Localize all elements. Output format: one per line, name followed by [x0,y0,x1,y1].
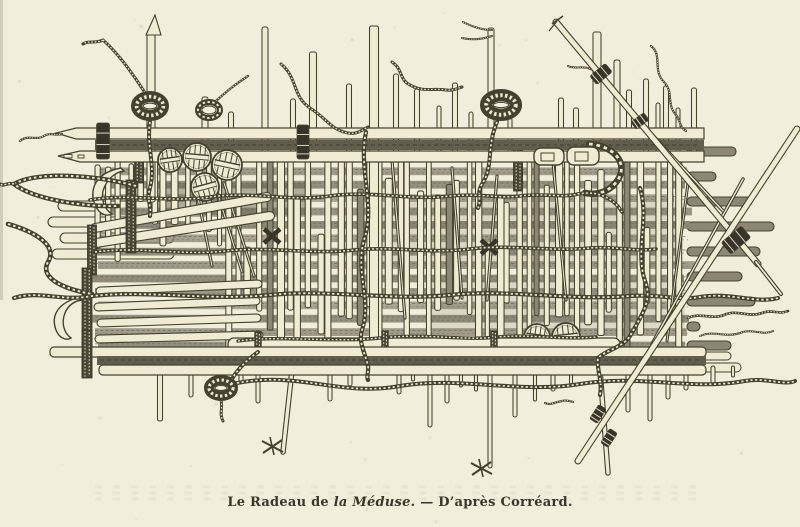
caption: Le Radeau de la Méduse. — D’après Corréa… [0,495,800,510]
caption-prefix: Le Radeau de [227,495,333,510]
engraving-figure: Le Radeau de la Méduse. — D’après Corréa… [0,0,800,527]
top-edge-beams [56,123,704,162]
raft-of-the-medusa-engraving [0,0,800,527]
book-page: Le Radeau de la Méduse. — D’après Corréa… [0,0,800,527]
caption-suffix: . — D’après Corréard. [411,495,573,510]
caption-title-italic: la Méduse [334,495,411,510]
